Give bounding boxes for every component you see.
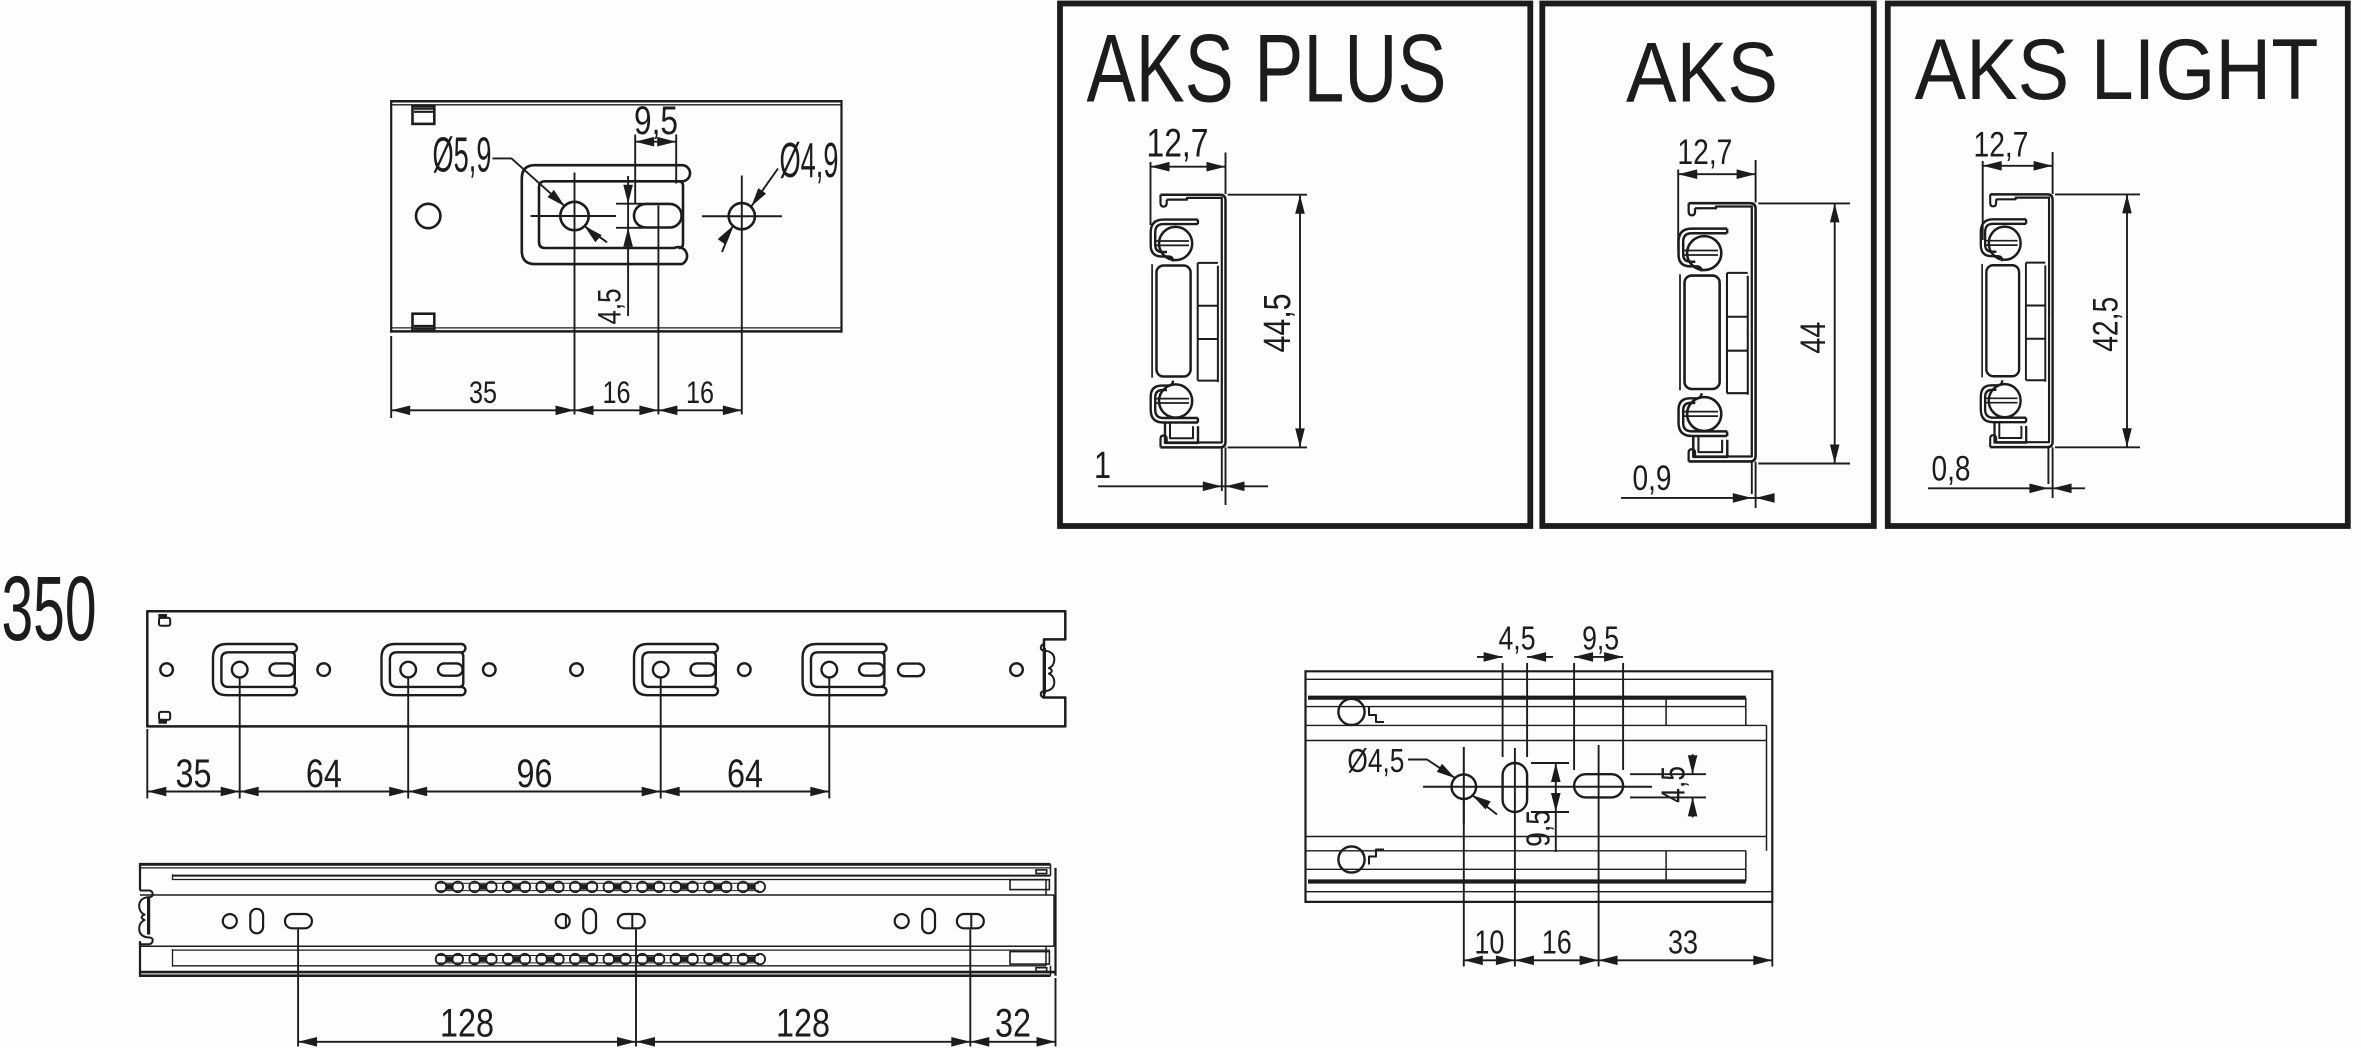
svg-text:42,5: 42,5 — [2087, 297, 2126, 352]
svg-text:16: 16 — [603, 375, 631, 410]
svg-text:12,7: 12,7 — [1147, 122, 1209, 166]
svg-text:0,8: 0,8 — [1932, 450, 1971, 489]
svg-text:9,5: 9,5 — [1582, 621, 1619, 658]
svg-text:Ø4,9: Ø4,9 — [780, 133, 839, 188]
svg-text:64: 64 — [727, 752, 763, 796]
svg-text:44: 44 — [1794, 322, 1833, 354]
svg-text:128: 128 — [776, 1002, 830, 1046]
svg-text:350: 350 — [2, 558, 97, 660]
svg-text:35: 35 — [176, 752, 212, 796]
svg-text:1: 1 — [1094, 444, 1111, 486]
svg-text:9,5: 9,5 — [634, 99, 678, 143]
svg-text:AKS LIGHT: AKS LIGHT — [1915, 22, 2319, 118]
svg-text:44,5: 44,5 — [1256, 294, 1298, 353]
svg-text:16: 16 — [686, 375, 714, 410]
svg-text:10: 10 — [1474, 925, 1504, 962]
svg-text:4,5: 4,5 — [592, 289, 628, 325]
svg-text:32: 32 — [995, 1002, 1031, 1046]
svg-text:Ø4,5: Ø4,5 — [1347, 743, 1404, 780]
svg-text:16: 16 — [1542, 925, 1572, 962]
svg-text:9,5: 9,5 — [1521, 810, 1558, 847]
svg-text:128: 128 — [440, 1002, 494, 1046]
svg-text:Ø5,9: Ø5,9 — [433, 128, 492, 183]
svg-text:0,9: 0,9 — [1633, 459, 1672, 498]
svg-text:96: 96 — [517, 752, 553, 796]
svg-text:33: 33 — [1668, 925, 1698, 962]
svg-text:AKS PLUS: AKS PLUS — [1087, 16, 1447, 123]
svg-text:AKS: AKS — [1626, 26, 1778, 121]
svg-text:4,5: 4,5 — [1499, 621, 1536, 658]
svg-text:12,7: 12,7 — [1677, 133, 1732, 172]
svg-text:12,7: 12,7 — [1974, 125, 2029, 164]
svg-text:35: 35 — [469, 375, 497, 410]
svg-text:4,5: 4,5 — [1656, 766, 1693, 803]
svg-text:64: 64 — [306, 752, 342, 796]
